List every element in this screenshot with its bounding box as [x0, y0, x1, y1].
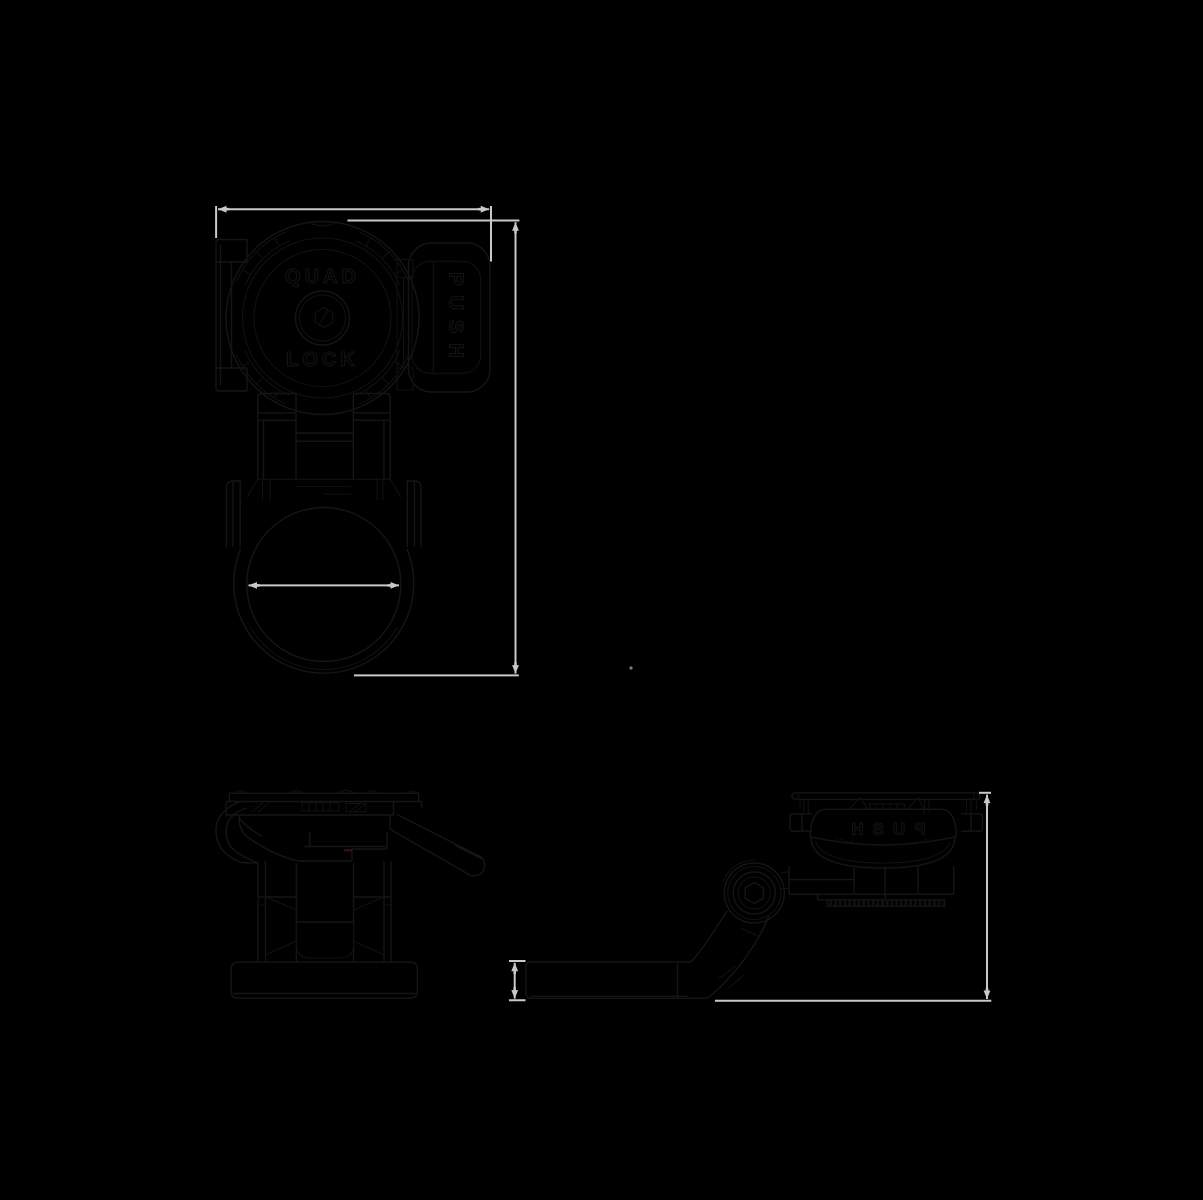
svg-text:PUSH: PUSH — [445, 272, 467, 368]
svg-text:PUSH: PUSH — [842, 820, 925, 839]
svg-text:LOCK: LOCK — [286, 349, 359, 371]
svg-text:QUAD: QUAD — [285, 266, 360, 288]
